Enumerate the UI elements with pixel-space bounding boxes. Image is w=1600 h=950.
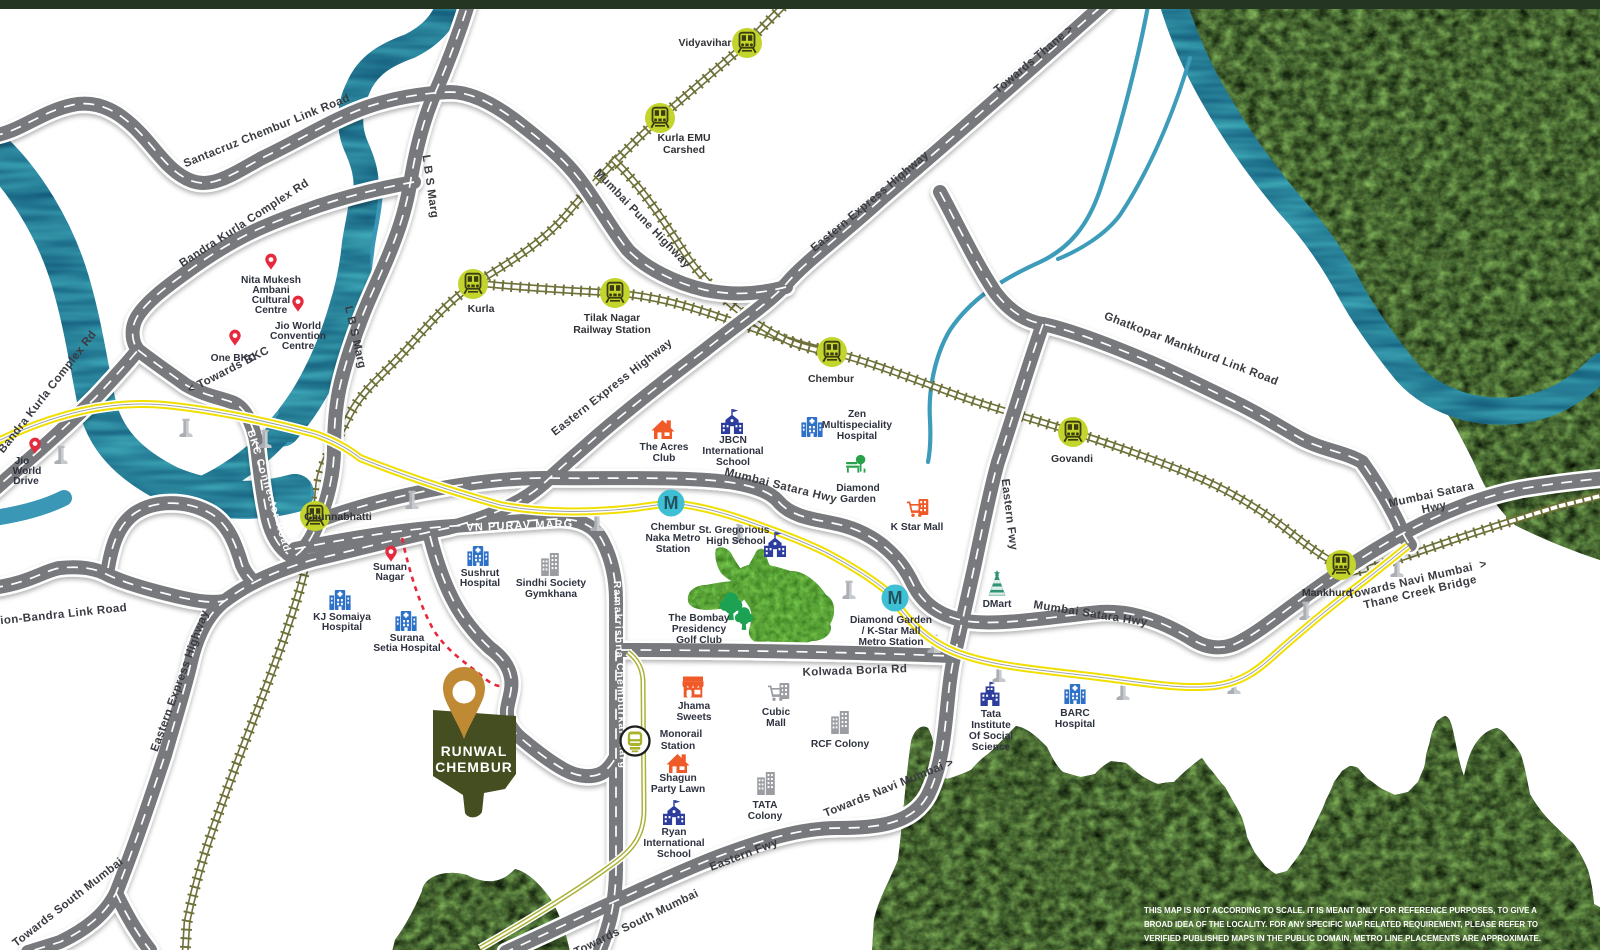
svg-text:Hospital: Hospital (1055, 719, 1095, 730)
svg-text:Setia Hospital: Setia Hospital (373, 643, 441, 654)
svg-text:Naka Metro: Naka Metro (646, 533, 701, 544)
svg-text:Golf Club: Golf Club (676, 635, 722, 646)
svg-text:Drive: Drive (13, 476, 39, 487)
svg-text:The Bombay: The Bombay (668, 613, 729, 624)
svg-text:Ryan: Ryan (662, 827, 687, 838)
svg-text:Nagar: Nagar (376, 572, 405, 583)
svg-text:Zen: Zen (848, 409, 866, 420)
svg-text:Multispeciality: Multispeciality (822, 420, 893, 431)
svg-text:International: International (643, 838, 704, 849)
svg-text:Monorail: Monorail (660, 729, 703, 740)
svg-text:Kurla: Kurla (468, 303, 495, 315)
svg-text:RCF Colony: RCF Colony (811, 739, 870, 750)
svg-text:Diamond: Diamond (836, 483, 880, 494)
svg-text:Jhama: Jhama (678, 701, 711, 712)
svg-text:Railway Station: Railway Station (573, 324, 651, 336)
svg-text:CHEMBUR: CHEMBUR (435, 760, 513, 775)
svg-text:Chunnabhatti: Chunnabhatti (304, 511, 372, 523)
svg-text:Station: Station (661, 741, 696, 752)
svg-text:Science: Science (972, 742, 1011, 753)
svg-text:Metro Station: Metro Station (858, 637, 923, 648)
svg-text:Institute: Institute (971, 720, 1011, 731)
svg-text:Presidency: Presidency (672, 624, 727, 635)
svg-text:/ K-Star Mall: / K-Star Mall (862, 626, 921, 637)
svg-text:School: School (716, 457, 750, 468)
svg-text:Hospital: Hospital (460, 578, 500, 589)
svg-text:Tata: Tata (981, 709, 1002, 720)
svg-text:Centre: Centre (282, 341, 315, 352)
svg-text:Carshed: Carshed (663, 144, 705, 156)
svg-text:Sweets: Sweets (676, 712, 711, 723)
svg-text:International: International (702, 446, 763, 457)
svg-text:RUNWAL: RUNWAL (441, 744, 508, 759)
svg-text:Tilak Nagar: Tilak Nagar (584, 312, 640, 324)
svg-text:Kurla EMU: Kurla EMU (657, 132, 710, 144)
svg-text:Hospital: Hospital (322, 622, 362, 633)
svg-text:The Acres: The Acres (640, 442, 689, 453)
svg-text:Club: Club (653, 453, 676, 464)
svg-text:JBCN: JBCN (719, 435, 747, 446)
svg-text:Mall: Mall (766, 718, 786, 729)
svg-text:BROAD IDEA OF THE LOCALITY. FO: BROAD IDEA OF THE LOCALITY. FOR ANY SPEC… (1144, 919, 1538, 929)
svg-text:Vidyavihar: Vidyavihar (679, 37, 732, 49)
svg-text:Of Social: Of Social (969, 731, 1013, 742)
svg-text:Centre: Centre (255, 305, 288, 316)
svg-text:Cubic: Cubic (762, 707, 791, 718)
svg-text:Sindhi Society: Sindhi Society (516, 578, 587, 589)
svg-text:Chembur: Chembur (651, 522, 696, 533)
svg-text:VERIFIED PUBLISHED MAPS IN THE: VERIFIED PUBLISHED MAPS IN THE PUBLIC DO… (1144, 933, 1541, 943)
svg-text:Station: Station (656, 544, 691, 555)
svg-text:School: School (657, 849, 691, 860)
svg-text:St. Gregorious: St. Gregorious (699, 525, 770, 536)
svg-text:BARC: BARC (1060, 708, 1090, 719)
svg-text:Chembur: Chembur (808, 373, 854, 385)
svg-text:Govandi: Govandi (1051, 453, 1093, 465)
svg-text:Shagun: Shagun (659, 773, 696, 784)
svg-text:K Star Mall: K Star Mall (891, 522, 944, 533)
svg-text:DMart: DMart (983, 599, 1012, 610)
svg-text:High School: High School (706, 536, 766, 547)
svg-text:Diamond Garden: Diamond Garden (850, 615, 932, 626)
svg-text:Gymkhana: Gymkhana (525, 589, 577, 600)
svg-text:Colony: Colony (748, 811, 783, 822)
svg-text:One BKC: One BKC (211, 353, 256, 364)
svg-text:TATA: TATA (753, 800, 779, 811)
svg-text:THIS MAP IS NOT ACCORDING TO S: THIS MAP IS NOT ACCORDING TO SCALE. IT I… (1144, 905, 1537, 915)
svg-text:Mankhurd: Mankhurd (1302, 587, 1352, 599)
svg-text:Garden: Garden (840, 494, 876, 505)
svg-text:Hospital: Hospital (837, 431, 877, 442)
svg-text:Party Lawn: Party Lawn (651, 784, 705, 795)
